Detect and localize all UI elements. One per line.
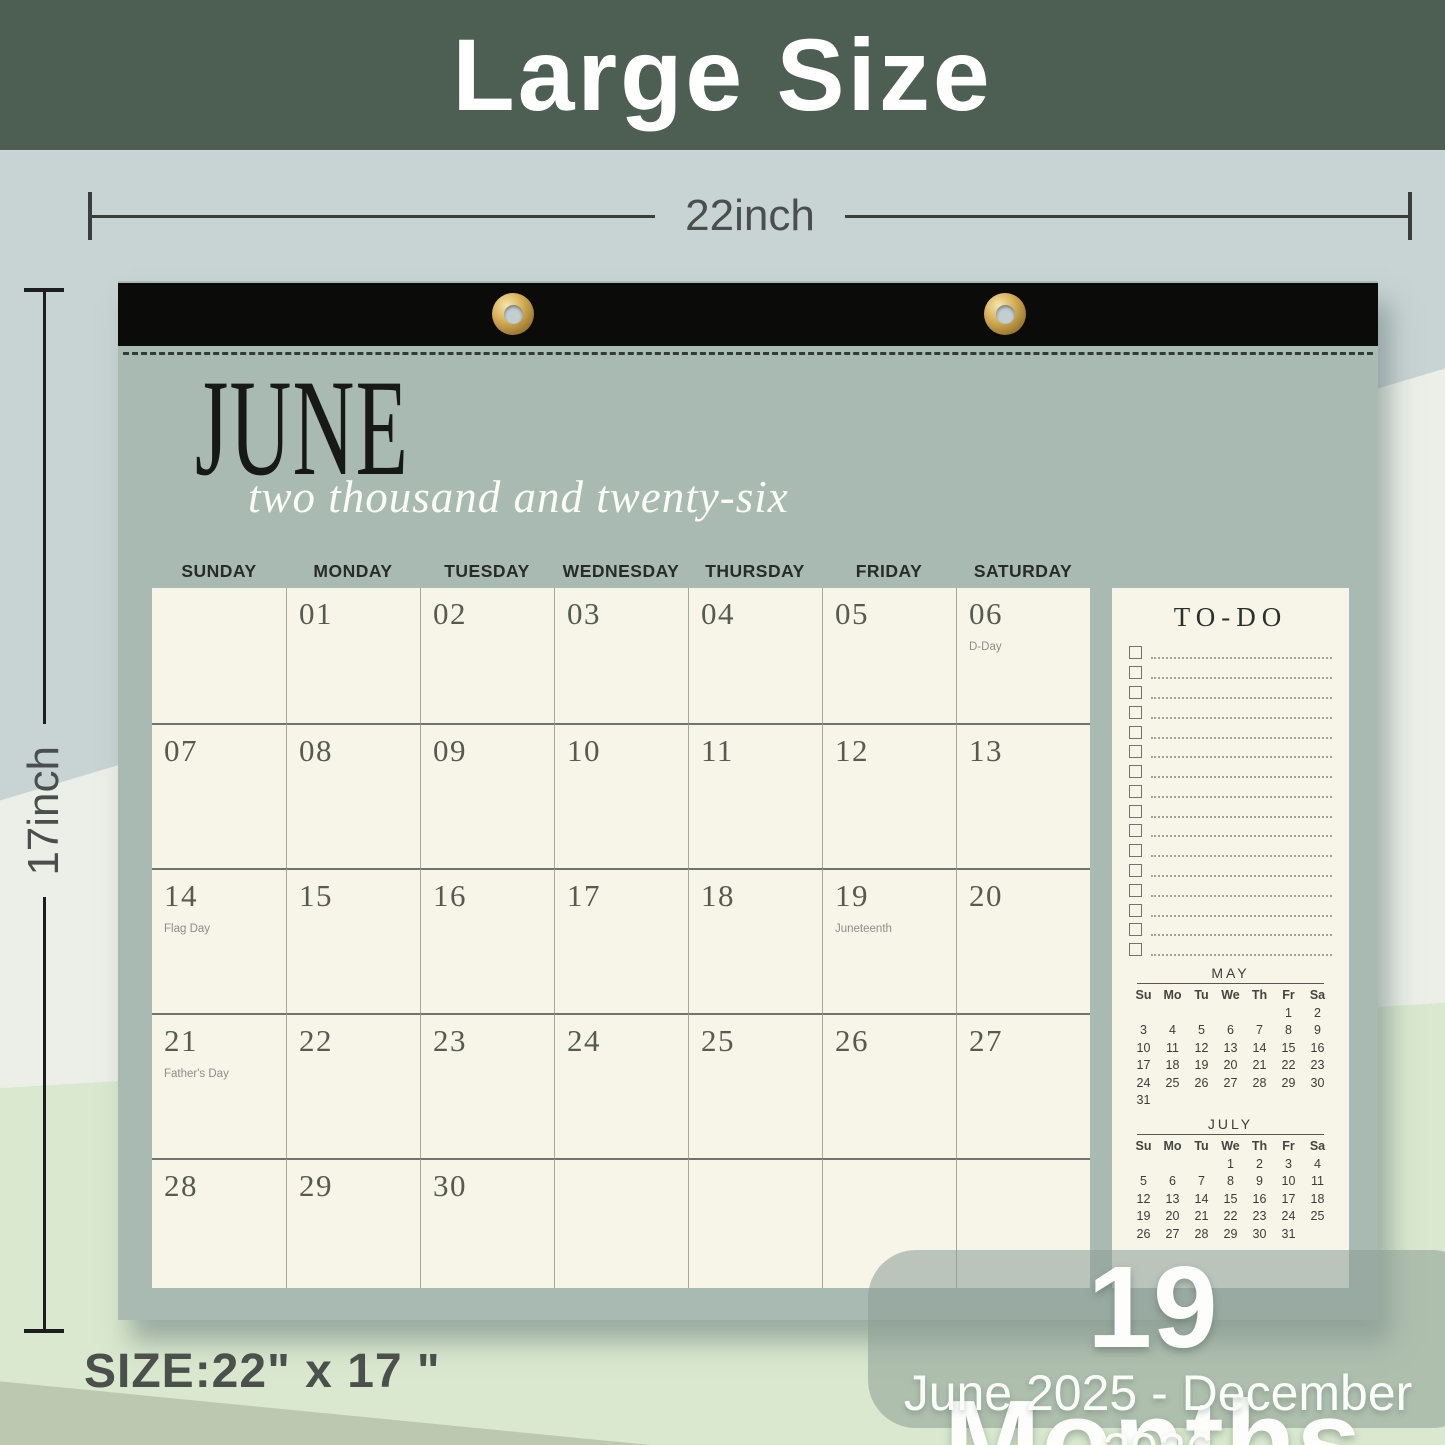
weekday-header: FRIDAY: [822, 561, 956, 582]
calendar-cell: 24: [554, 1013, 688, 1158]
date-number: 17: [567, 878, 684, 914]
mini-date: 28: [1245, 1076, 1274, 1090]
date-number: 01: [299, 596, 416, 632]
mini-date: 8: [1274, 1023, 1303, 1037]
mini-weekday-header: We: [1216, 1139, 1245, 1153]
calendar-cell: 25: [688, 1013, 822, 1158]
todo-write-line: [1151, 943, 1332, 956]
mini-date: 12: [1129, 1192, 1158, 1206]
todo-row: [1129, 665, 1332, 679]
calendar-cell: 22: [286, 1013, 420, 1158]
todo-write-line: [1151, 805, 1332, 818]
todo-row: [1129, 882, 1332, 896]
calendar-cell: [554, 1158, 688, 1288]
mini-date: 24: [1129, 1076, 1158, 1090]
mini-weekday-header: Th: [1245, 988, 1274, 1002]
date-number: 08: [299, 733, 416, 769]
calendar-cell: [152, 588, 286, 723]
mini-date: 17: [1274, 1192, 1303, 1206]
mini-date: 18: [1158, 1058, 1187, 1072]
mini-date: 14: [1245, 1041, 1274, 1055]
month-grid: 010203040506D-Day0708091011121314Flag Da…: [152, 588, 1090, 1288]
mini-date: 10: [1129, 1041, 1158, 1055]
mini-date: 20: [1216, 1058, 1245, 1072]
todo-write-line: [1151, 923, 1332, 936]
mini-date: 1: [1274, 1006, 1303, 1020]
date-number: 05: [835, 596, 952, 632]
width-dimension-label: 22inch: [655, 191, 845, 241]
calendar-cell: 05: [822, 588, 956, 723]
todo-write-line: [1151, 765, 1332, 778]
todo-checkbox: [1129, 805, 1142, 818]
mini-weekday-header: Sa: [1303, 988, 1332, 1002]
calendar-cell: 20: [956, 868, 1090, 1013]
date-number: 11: [701, 733, 818, 769]
mini-date: 6: [1216, 1023, 1245, 1037]
todo-row: [1129, 685, 1332, 699]
mini-weekday-header: Su: [1129, 988, 1158, 1002]
todo-checkbox: [1129, 706, 1142, 719]
mini-weekday-header: Th: [1245, 1139, 1274, 1153]
date-number: 02: [433, 596, 550, 632]
todo-checkbox: [1129, 726, 1142, 739]
mini-date: 26: [1129, 1227, 1158, 1241]
todo-write-line: [1151, 666, 1332, 679]
calendar-cell: 16: [420, 868, 554, 1013]
mini-weekday-header: Tu: [1187, 1139, 1216, 1153]
calendar-cell: 27: [956, 1013, 1090, 1158]
mini-date: 9: [1245, 1174, 1274, 1188]
weekday-header: TUESDAY: [420, 561, 554, 582]
weekday-header: MONDAY: [286, 561, 420, 582]
todo-row: [1129, 843, 1332, 857]
date-number: 04: [701, 596, 818, 632]
mini-date: [1245, 1006, 1274, 1020]
mini-date: 22: [1274, 1058, 1303, 1072]
mini-date: [1303, 1227, 1332, 1241]
calendar-cell: [688, 1158, 822, 1288]
calendar-cell: 13: [956, 723, 1090, 868]
mini-date: [1158, 1093, 1187, 1107]
todo-checkbox: [1129, 745, 1142, 758]
mini-date: 27: [1158, 1227, 1187, 1241]
mini-date: 20: [1158, 1209, 1187, 1223]
mini-date: 21: [1187, 1209, 1216, 1223]
date-number: 10: [567, 733, 684, 769]
todo-write-line: [1151, 686, 1332, 699]
todo-checkbox: [1129, 923, 1142, 936]
mini-date: 19: [1129, 1209, 1158, 1223]
mini-date: [1216, 1093, 1245, 1107]
todo-write-line: [1151, 824, 1332, 837]
todo-checkbox: [1129, 864, 1142, 877]
todo-checkbox: [1129, 686, 1142, 699]
mini-date: 17: [1129, 1058, 1158, 1072]
date-number: 20: [969, 878, 1086, 914]
weekday-header: SUNDAY: [152, 561, 286, 582]
todo-row: [1129, 922, 1332, 936]
mini-date: 16: [1303, 1041, 1332, 1055]
calendar-cell: 26: [822, 1013, 956, 1158]
calendar-cell: 09: [420, 723, 554, 868]
date-number: 22: [299, 1023, 416, 1059]
mini-date: 16: [1245, 1192, 1274, 1206]
todo-write-line: [1151, 785, 1332, 798]
mini-date: 31: [1274, 1227, 1303, 1241]
mini-date: 29: [1274, 1076, 1303, 1090]
todo-write-line: [1151, 884, 1332, 897]
top-banner: Large Size: [0, 0, 1445, 150]
mini-date: 2: [1303, 1006, 1332, 1020]
mini-date: 15: [1274, 1041, 1303, 1055]
mini-date: 22: [1216, 1209, 1245, 1223]
date-number: 15: [299, 878, 416, 914]
calendar-cell: 29: [286, 1158, 420, 1288]
calendar-cell: 10: [554, 723, 688, 868]
mini-date: 14: [1187, 1192, 1216, 1206]
mini-calendar-grid: SuMoTuWeThFrSa12345678910111213141516171…: [1129, 988, 1332, 1107]
mini-weekday-header: Su: [1129, 1139, 1158, 1153]
todo-row: [1129, 724, 1332, 738]
mini-weekday-header: Mo: [1158, 1139, 1187, 1153]
mini-date: [1158, 1157, 1187, 1171]
mini-date: 1: [1216, 1157, 1245, 1171]
holiday-label: D-Day: [969, 641, 1086, 653]
todo-panel: TO-DO MAYSuMoTuWeThFrSa12345678910111213…: [1112, 588, 1349, 1288]
grommet-hole: [996, 305, 1015, 324]
todo-write-line: [1151, 904, 1332, 917]
mini-date: [1245, 1093, 1274, 1107]
date-number: 29: [299, 1168, 416, 1204]
todo-checkbox: [1129, 943, 1142, 956]
dimension-line: [43, 292, 46, 724]
mini-date: 27: [1216, 1076, 1245, 1090]
weekday-header: WEDNESDAY: [554, 561, 688, 582]
product-image: Large Size 22inch 17inch JUNE two thousa…: [0, 0, 1445, 1445]
todo-row: [1129, 942, 1332, 956]
mini-date: 19: [1187, 1058, 1216, 1072]
date-number: 23: [433, 1023, 550, 1059]
calendar-cell: 11: [688, 723, 822, 868]
mini-weekday-header: Mo: [1158, 988, 1187, 1002]
todo-row: [1129, 803, 1332, 817]
mini-date: 9: [1303, 1023, 1332, 1037]
date-number: 18: [701, 878, 818, 914]
mini-date: 28: [1187, 1227, 1216, 1241]
height-dimension-label: 17inch: [19, 724, 69, 898]
mini-date: 24: [1274, 1209, 1303, 1223]
mini-date: 11: [1158, 1041, 1187, 1055]
date-number: 03: [567, 596, 684, 632]
mini-date: 23: [1303, 1058, 1332, 1072]
calendar-cell: 07: [152, 723, 286, 868]
date-number: 16: [433, 878, 550, 914]
mini-date: 7: [1245, 1023, 1274, 1037]
year-script-subtitle: two thousand and twenty-six: [248, 471, 789, 523]
todo-row: [1129, 704, 1332, 718]
todo-write-line: [1151, 726, 1332, 739]
mini-date: 30: [1245, 1227, 1274, 1241]
todo-write-line: [1151, 646, 1332, 659]
todo-row: [1129, 902, 1332, 916]
mini-date: [1216, 1006, 1245, 1020]
holiday-label: Juneteenth: [835, 923, 952, 935]
date-number: 12: [835, 733, 952, 769]
badge-subtitle: June 2025 - December 2026: [882, 1364, 1434, 1445]
todo-checkbox: [1129, 666, 1142, 679]
calendar-cell: 23: [420, 1013, 554, 1158]
dimension-line: [845, 215, 1408, 218]
mini-calendars: MAYSuMoTuWeThFrSa12345678910111213141516…: [1129, 965, 1332, 1241]
todo-checkbox: [1129, 765, 1142, 778]
todo-checkbox: [1129, 884, 1142, 897]
calendar-cell: 02: [420, 588, 554, 723]
mini-date: 4: [1303, 1157, 1332, 1171]
calendar-cell: 17: [554, 868, 688, 1013]
mini-date: 7: [1187, 1174, 1216, 1188]
mini-date: 23: [1245, 1209, 1274, 1223]
date-number: 26: [835, 1023, 952, 1059]
todo-row: [1129, 823, 1332, 837]
mini-date: [1129, 1006, 1158, 1020]
date-number: 14: [164, 878, 282, 914]
calendar-cell: 18: [688, 868, 822, 1013]
calendar-cell: 01: [286, 588, 420, 723]
date-number: 28: [164, 1168, 282, 1204]
todo-checkbox: [1129, 904, 1142, 917]
mini-calendar: JULYSuMoTuWeThFrSa1234567891011121314151…: [1129, 1116, 1332, 1241]
calendar-cell: 04: [688, 588, 822, 723]
mini-date: 21: [1245, 1058, 1274, 1072]
calendar-cell: 19Juneteenth: [822, 868, 956, 1013]
dimension-tick-bottom: [24, 1329, 64, 1333]
mini-weekday-header: Sa: [1303, 1139, 1332, 1153]
size-caption: SIZE:22" x 17 ": [84, 1344, 441, 1399]
todo-row: [1129, 744, 1332, 758]
grommet-right-icon: [984, 293, 1026, 335]
mini-date: [1187, 1157, 1216, 1171]
mini-weekday-header: We: [1216, 988, 1245, 1002]
calendar-cell: 28: [152, 1158, 286, 1288]
weekday-header: SATURDAY: [956, 561, 1090, 582]
mini-calendar-title: JULY: [1129, 1116, 1332, 1132]
date-number: 13: [969, 733, 1086, 769]
date-number: 25: [701, 1023, 818, 1059]
mini-date: 4: [1158, 1023, 1187, 1037]
mini-date: 5: [1129, 1174, 1158, 1188]
mini-weekday-header: Tu: [1187, 988, 1216, 1002]
mini-date: 18: [1303, 1192, 1332, 1206]
weekday-header-row: SUNDAYMONDAYTUESDAYWEDNESDAYTHURSDAYFRID…: [152, 561, 1090, 582]
todo-title: TO-DO: [1129, 602, 1332, 633]
mini-date: 25: [1158, 1076, 1187, 1090]
calendar-cell: 15: [286, 868, 420, 1013]
date-number: 09: [433, 733, 550, 769]
mini-date: 2: [1245, 1157, 1274, 1171]
banner-title: Large Size: [452, 17, 992, 134]
calendar-cell: 12: [822, 723, 956, 868]
mini-date: [1129, 1157, 1158, 1171]
dimension-tick-right: [1408, 192, 1412, 240]
calendar-cell: 03: [554, 588, 688, 723]
dimension-line: [43, 897, 46, 1329]
mini-date: 30: [1303, 1076, 1332, 1090]
mini-date: 15: [1216, 1192, 1245, 1206]
mini-calendar-rule: [1137, 1134, 1324, 1135]
calendar-cell: 14Flag Day: [152, 868, 286, 1013]
months-badge: 19 Months June 2025 - December 2026: [868, 1250, 1445, 1428]
grommet-left-icon: [492, 293, 534, 335]
mini-date: 12: [1187, 1041, 1216, 1055]
dimension-line: [92, 215, 655, 218]
mini-date: 11: [1303, 1174, 1332, 1188]
weekday-header: THURSDAY: [688, 561, 822, 582]
mini-date: 13: [1216, 1041, 1245, 1055]
mini-date: 6: [1158, 1174, 1187, 1188]
mini-date: 5: [1187, 1023, 1216, 1037]
mini-weekday-header: Fr: [1274, 1139, 1303, 1153]
mini-date: 13: [1158, 1192, 1187, 1206]
calendar-cell: 08: [286, 723, 420, 868]
mini-date: 3: [1129, 1023, 1158, 1037]
calendar-cell: 30: [420, 1158, 554, 1288]
mini-date: 25: [1303, 1209, 1332, 1223]
mini-date: 8: [1216, 1174, 1245, 1188]
binding-strip: [118, 283, 1378, 346]
calendar-cell: 21Father's Day: [152, 1013, 286, 1158]
mini-calendar: MAYSuMoTuWeThFrSa12345678910111213141516…: [1129, 965, 1332, 1107]
todo-row: [1129, 863, 1332, 877]
mini-date: 10: [1274, 1174, 1303, 1188]
mini-date: 3: [1274, 1157, 1303, 1171]
date-number: 06: [969, 596, 1086, 632]
todo-row: [1129, 645, 1332, 659]
mini-date: [1158, 1006, 1187, 1020]
todo-checkbox: [1129, 844, 1142, 857]
todo-row: [1129, 783, 1332, 797]
width-dimension: 22inch: [88, 192, 1412, 240]
todo-checkbox: [1129, 785, 1142, 798]
mini-date: [1303, 1093, 1332, 1107]
desk-calendar: JUNE two thousand and twenty-six SUNDAYM…: [118, 281, 1378, 1320]
date-number: 21: [164, 1023, 282, 1059]
date-number: 30: [433, 1168, 550, 1204]
mini-date: [1274, 1093, 1303, 1107]
height-dimension: 17inch: [24, 288, 64, 1333]
todo-write-line: [1151, 745, 1332, 758]
todo-checkbox: [1129, 824, 1142, 837]
date-number: 19: [835, 878, 952, 914]
todo-list: [1129, 645, 1332, 956]
todo-write-line: [1151, 706, 1332, 719]
mini-date: 26: [1187, 1076, 1216, 1090]
mini-calendar-title: MAY: [1129, 965, 1332, 981]
holiday-label: Father's Day: [164, 1068, 282, 1080]
todo-checkbox: [1129, 646, 1142, 659]
mini-calendar-grid: SuMoTuWeThFrSa12345678910111213141516171…: [1129, 1139, 1332, 1241]
grommet-hole: [504, 305, 523, 324]
date-number: 07: [164, 733, 282, 769]
date-number: 27: [969, 1023, 1086, 1059]
todo-write-line: [1151, 844, 1332, 857]
mini-date: [1187, 1093, 1216, 1107]
holiday-label: Flag Day: [164, 923, 282, 935]
todo-row: [1129, 764, 1332, 778]
date-number: 24: [567, 1023, 684, 1059]
todo-write-line: [1151, 864, 1332, 877]
calendar-cell: 06D-Day: [956, 588, 1090, 723]
mini-date: [1187, 1006, 1216, 1020]
mini-calendar-rule: [1137, 983, 1324, 984]
mini-date: 29: [1216, 1227, 1245, 1241]
mini-date: 31: [1129, 1093, 1158, 1107]
mini-weekday-header: Fr: [1274, 988, 1303, 1002]
